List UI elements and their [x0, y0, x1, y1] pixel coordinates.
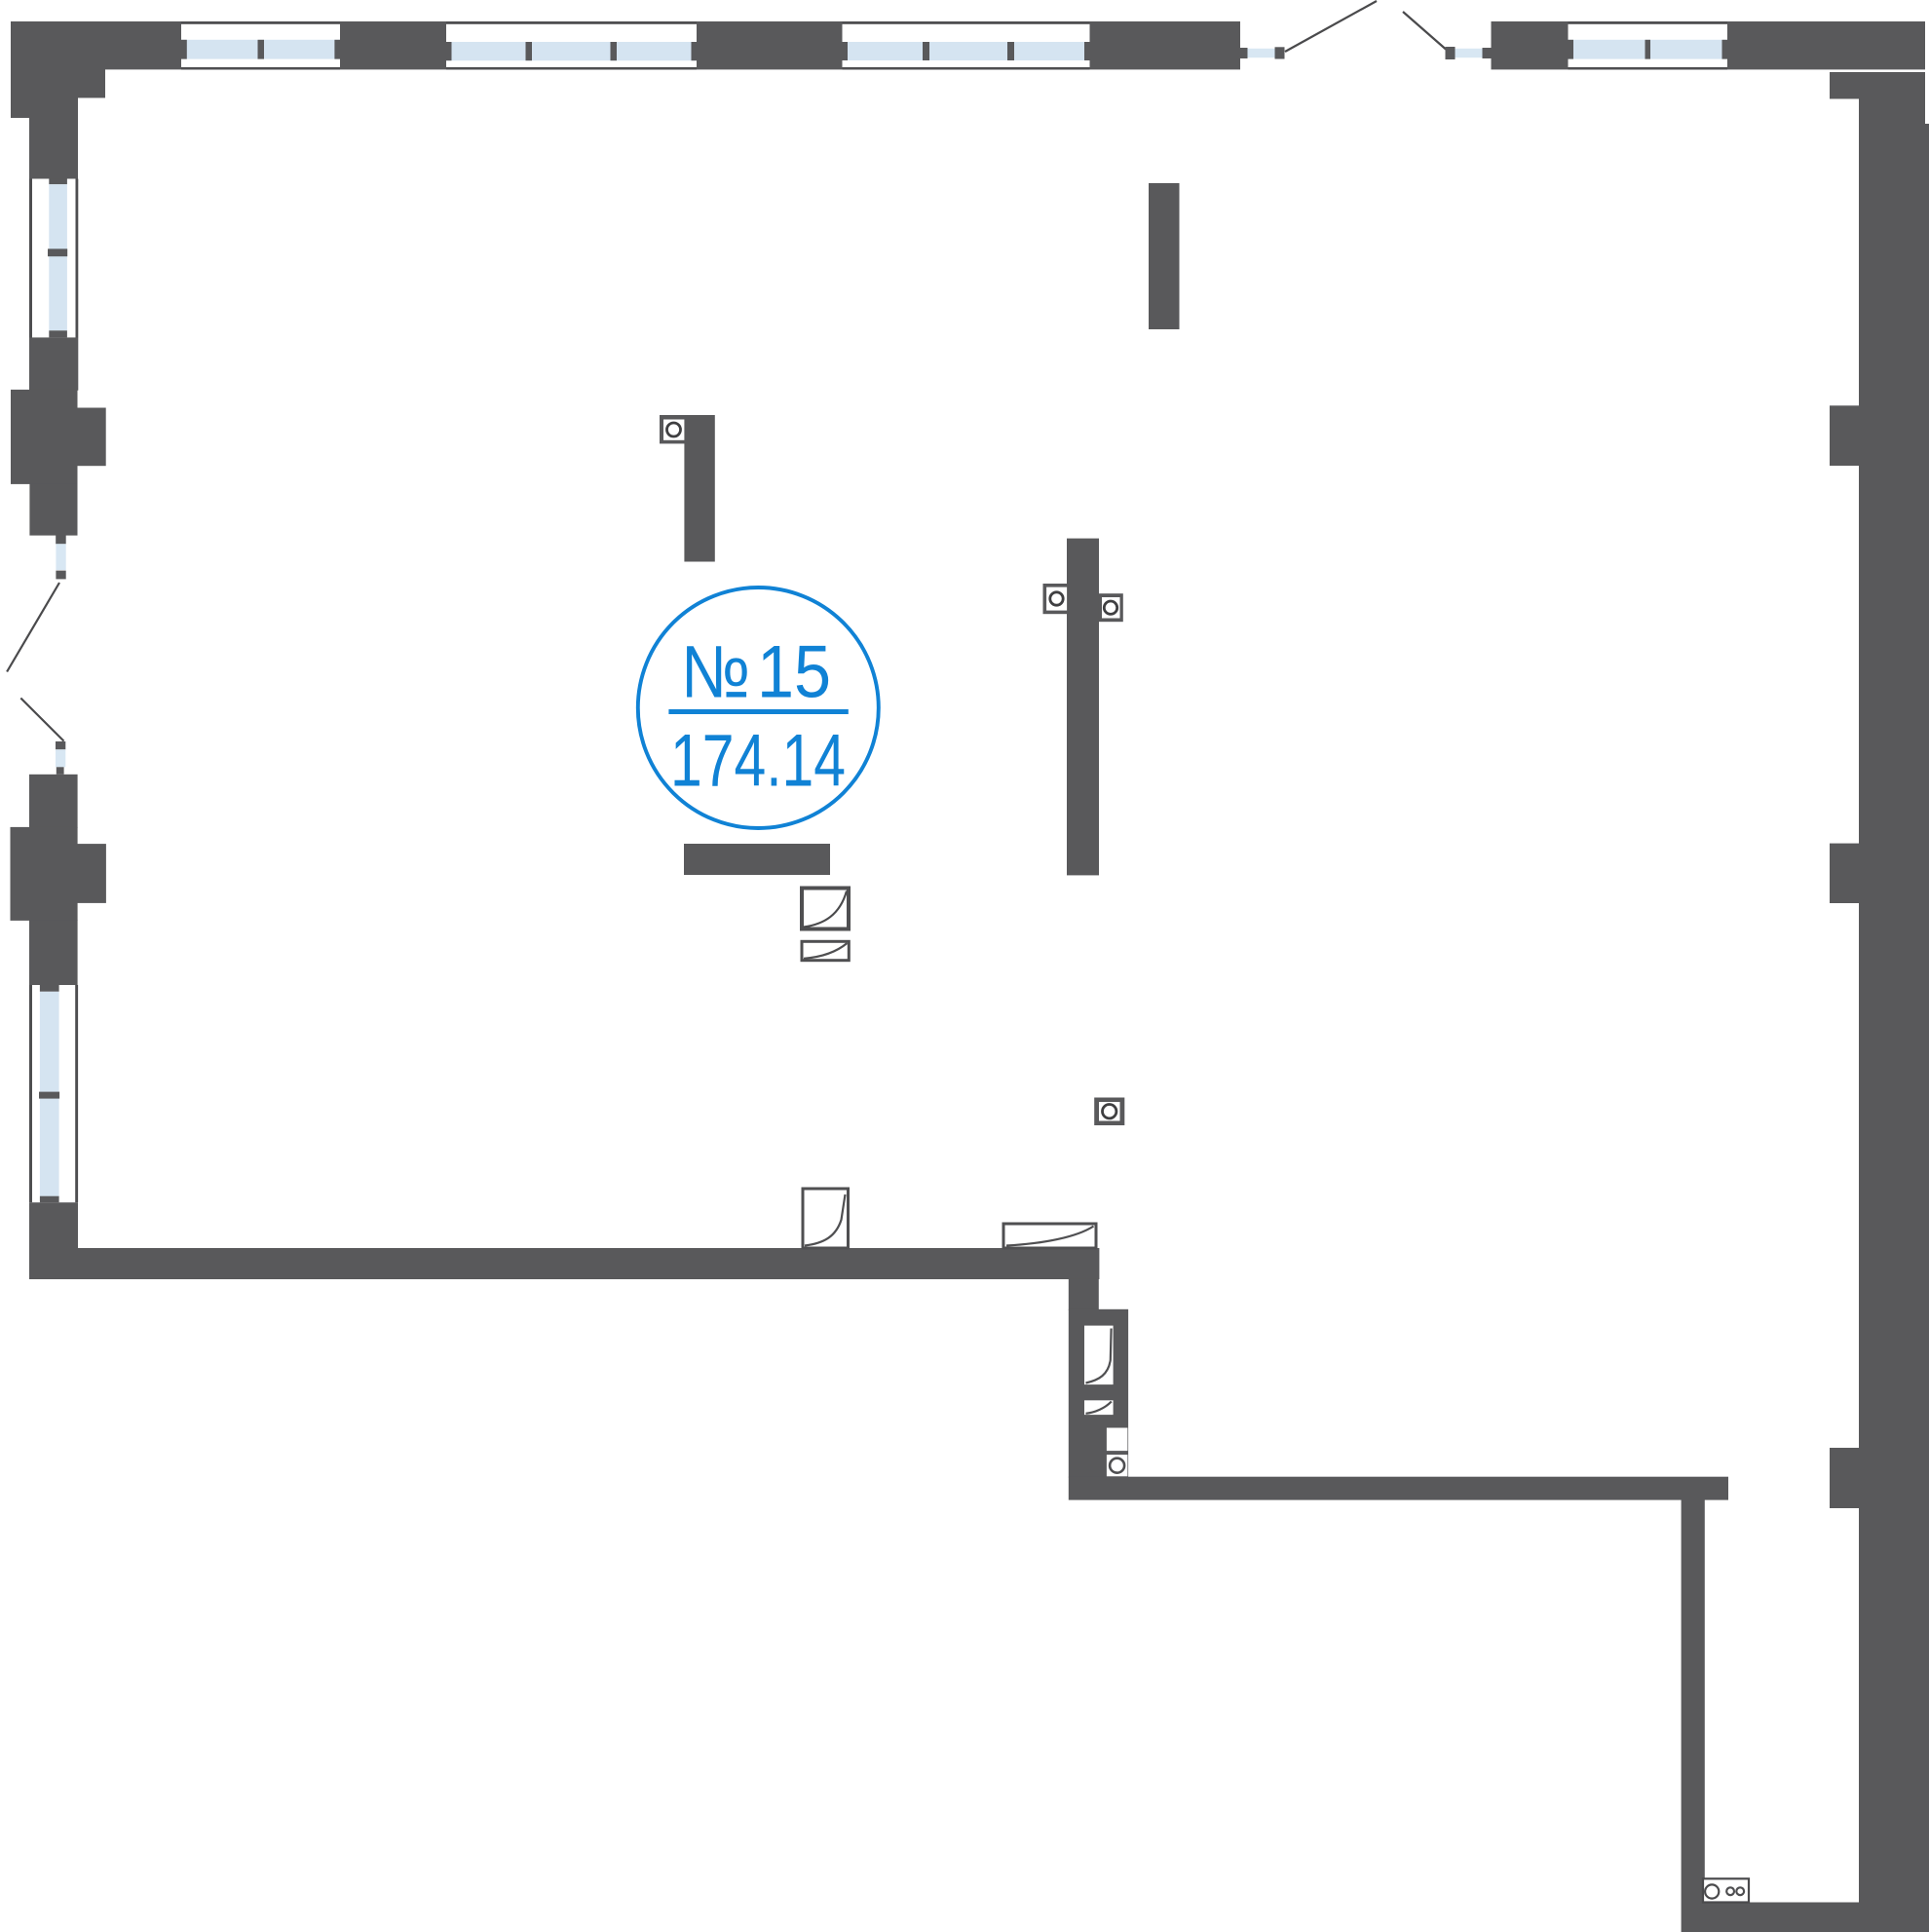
svg-text:174.14: 174.14 [670, 719, 846, 802]
svg-text:15: 15 [757, 631, 831, 714]
svg-text:№: № [681, 631, 750, 714]
